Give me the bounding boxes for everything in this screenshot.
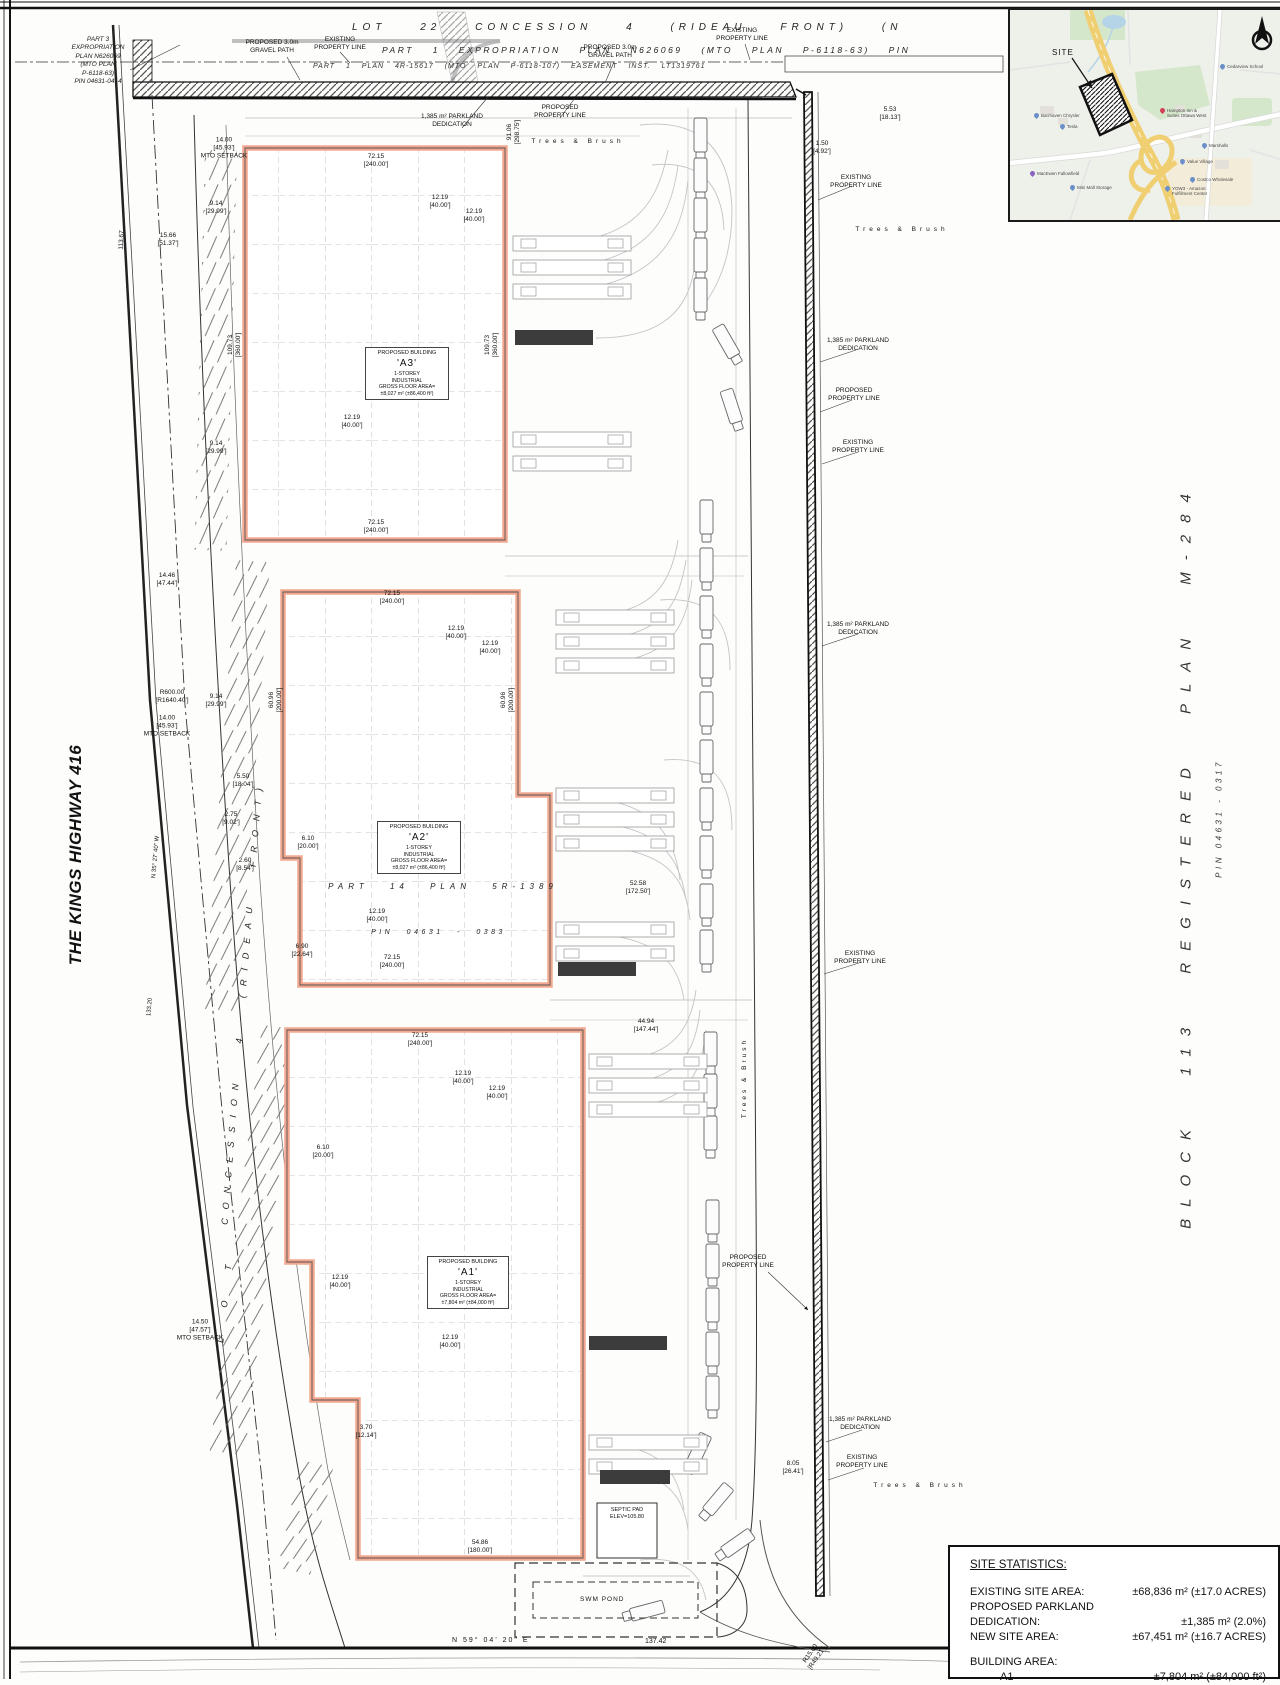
annotation-label: 72.15 [240.00'] [408,1032,433,1048]
annotation-label: 8.05 [26.41'] [782,1460,803,1476]
annotation-label: 14.00 [45.93'] MTO SETBACK [144,714,190,737]
key-map-inset: SITE Cedarview SchoolHampton Inn & Suite… [1008,8,1280,222]
annotation-label: 72.15 [240.00'] [364,153,389,169]
annotation-label: 1,385 m² PARKLAND DEDICATION [829,1416,891,1432]
site-statistics-title: SITE STATISTICS: [970,1559,1278,1571]
building-name: 'A2' [380,832,458,845]
building-name: 'A3' [368,358,446,371]
pin-0383-label: PIN 04631 - 0383 [346,929,531,936]
annotation-label: PROPOSED 3.0m GRAVEL PATH [583,44,636,60]
annotation-label: 14.50 [47.57'] MTO SETBACK [177,1318,223,1341]
annotation-label: EXISTING PROPERTY LINE [836,1454,888,1470]
map-poi: Hampton Inn & Suites Ottawa West [1160,108,1206,118]
annotation-label: 1,385 m² PARKLAND DEDICATION [827,337,889,353]
building-gfa-label: GROSS FLOOR AREA= [430,1293,506,1300]
map-pin-icon [1201,142,1208,149]
building-a2 [283,592,550,985]
site-statistics-panel: SITE STATISTICS: EXISTING SITE AREA: ±68… [948,1545,1280,1679]
annotation-label: PROPOSED PROPERTY LINE [722,1254,774,1270]
annotation-label: 109.73 [360.00'] [484,333,500,358]
truck-trailers [621,118,755,1623]
annotation-label: 9.14 [29.99'] [205,693,226,709]
map-poi: Value Village [1180,159,1213,164]
map-poi: Marshalls [1202,143,1228,148]
annotation-label: Trees & Brush [741,1038,749,1118]
stat-row: A1 ±7,804 m² (±84,000 ft²) [970,1670,1270,1684]
part3-expropriation-note: PART 3 EXPROPRIATION PLAN N626069 (MTO P… [50,36,146,87]
stat-value: ±68,836 m² (±17.0 ACRES) [1122,1585,1270,1599]
right-property-line [804,92,830,1596]
map-poi: Cedarview School [1220,64,1263,69]
building-gfa-value: ±8,027 m² (±86,400 ft²) [380,865,458,872]
map-poi-name: Mini Mall Storage [1077,185,1112,190]
easement-strip [785,56,1003,72]
annotation-label: 1.50 [4.92'] [813,140,831,156]
stat-label: NEW SITE AREA: [970,1630,1122,1644]
annotation-label: PROPOSED PROPERTY LINE [828,387,880,403]
building-a3-label: PROPOSED BUILDING 'A3' 1-STOREY INDUSTRI… [365,347,449,400]
annotation-label: 9.14 [29.99'] [205,440,226,456]
distance-bottom-label: 137.42 [645,1638,666,1645]
map-pond [1102,15,1126,29]
map-poi: MacEwen Fallowfield [1030,171,1079,176]
annotation-label: 3.70 [12.14'] [355,1424,376,1440]
annotation-label: R600.00 [R1640.40'] [155,689,188,705]
map-poi-name: Costco Wholesale [1197,177,1233,182]
map-pin-icon [1179,158,1186,165]
annotation-label: 12.19 [40.00'] [341,414,362,430]
annotation-label: EXISTING PROPERTY LINE [314,36,366,52]
stat-value: ±1,385 m² (2.0%) [1122,1615,1270,1629]
map-pin-icon [1159,107,1166,114]
annotation-label: 109.73 [360.00'] [227,333,243,358]
map-poi: Tesla [1060,124,1078,129]
building-gfa-label: GROSS FLOOR AREA= [368,384,446,391]
map-pin-icon [1033,112,1040,119]
building-title: PROPOSED BUILDING [380,824,458,831]
legal-title-line3: PART 1 PLAN 4R-15617 (MTO PLAN P-6118-10… [313,63,706,70]
map-pin-icon [1059,123,1066,130]
building-title: PROPOSED BUILDING [430,1259,506,1266]
annotation-label: 91.06 [298.75'] [506,120,522,145]
block-113-plan-label: BLOCK 113 REGISTERED PLAN M-284 [1178,406,1195,1306]
stat-value: ±7,804 m² (±84,000 ft²) [1122,1670,1270,1684]
annotation-label: 12.19 [40.00'] [452,1070,473,1086]
stat-label: PROPOSED PARKLAND DEDICATION: [970,1600,1122,1629]
building-gfa-value: ±8,027 m² (±86,400 ft²) [368,391,446,398]
building-title: PROPOSED BUILDING [368,350,446,357]
annotation-label: 6.10 [20.00'] [297,835,318,851]
building-a3 [245,148,505,540]
map-poi-name: Value Village [1187,159,1213,164]
map-poi-name: Tesla [1067,124,1078,129]
annotation-label: 14.46 [47.44'] [156,572,177,588]
part14-plan-label: PART 14 PLAN 5R-1389 [318,882,568,891]
annotation-label: 54.86 [180.00'] [468,1539,493,1555]
annotation-label: EXISTING PROPERTY LINE [834,950,886,966]
annotation-label: 1,385 m² PARKLAND DEDICATION [827,621,889,637]
annotation-label: 12.19 [40.00'] [486,1085,507,1101]
annotation-label: 9.14 [29.99'] [205,200,226,216]
map-poi: Mini Mall Storage [1070,185,1112,190]
map-pin-icon [1189,176,1196,183]
map-pin-icon [1219,63,1226,70]
annotation-label: 60.96 [200.00'] [500,688,516,713]
stat-row: PROPOSED PARKLAND DEDICATION: ±1,385 m² … [970,1600,1270,1629]
annotation-label: 1,385 m² PARKLAND DEDICATION [421,113,483,129]
annotation-label: 12.19 [40.00'] [445,625,466,641]
annotation-label: 113.67 [118,230,127,250]
annotation-label: 12.19 [40.00'] [366,908,387,924]
site-plan-sheet: { "sheet": { "top_title_line1": "LOT 22 … [0,0,1280,1679]
stat-label: BUILDING AREA: [970,1655,1122,1669]
annotation-label: EXISTING PROPERTY LINE [716,27,768,43]
annotation-label: 52.58 [172.50'] [626,880,651,896]
annotation-label: 14.00 [45.93'] MTO SETBACK [201,136,247,159]
map-poi-name: Cedarview School [1227,64,1263,69]
annotation-label: Trees & Brush [873,1482,966,1490]
swm-pond-label: SWM POND [580,1596,624,1603]
annotation-label: 6.90 [22.64'] [291,943,312,959]
annotation-label: Trees & Brush [855,226,948,234]
annotation-label: 72.15 [240.00'] [380,954,405,970]
stat-label: EXISTING SITE AREA: [970,1585,1122,1599]
annotation-label: Trees & Brush [531,138,624,146]
building-name: 'A1' [430,1267,506,1280]
building-a2-label: PROPOSED BUILDING 'A2' 1-STOREY INDUSTRI… [377,821,461,874]
stat-row: EXISTING SITE AREA: ±68,836 m² (±17.0 AC… [970,1585,1270,1599]
map-poi: Costco Wholesale [1190,177,1233,182]
annotation-label: 12.19 [40.00'] [463,208,484,224]
map-pin-icon [1164,185,1171,192]
map-poi: Barrhaven Chrysler [1034,113,1080,118]
map-pin-icon [1069,184,1076,191]
map-site-label: SITE [1052,48,1074,57]
annotation-label: 72.15 [240.00'] [380,590,405,606]
map-poi-name: MacEwen Fallowfield [1037,171,1079,176]
annotation-label: PROPOSED 3.0m GRAVEL PATH [245,39,298,55]
annotation-label: 15.66 [51.37'] [157,232,178,248]
annotation-label: PROPOSED PROPERTY LINE [534,104,586,120]
pin-0317-label: PIN 04631 - 0317 [1215,689,1224,949]
legal-title-line1: LOT 22 CONCESSION 4 (RIDEAU FRONT) (N [352,22,902,33]
map-poi-name: Barrhaven Chrysler [1041,113,1080,118]
annotation-label: 5.53 [18.13'] [879,106,900,122]
map-poi-name: Hampton Inn & Suites Ottawa West [1167,108,1206,118]
annotation-label: 44.94 [147.44'] [634,1018,659,1034]
annotation-label: EXISTING PROPERTY LINE [830,174,882,190]
map-poi: YOW3 - Amazon Fulfillment Center [1165,186,1207,196]
annotation-label: 60.96 [200.00'] [268,688,284,713]
bearing-bottom-label: N 59° 04' 20" E [452,1637,529,1644]
annotation-label: 12.19 [40.00'] [329,1274,350,1290]
map-poi-name: Marshalls [1209,143,1228,148]
annotation-label: EXISTING PROPERTY LINE [832,439,884,455]
annotation-label: 2.75 [9.02'] [222,811,240,827]
map-pin-icon [1029,170,1036,177]
stat-row: NEW SITE AREA: ±67,451 m² (±16.7 ACRES) [970,1630,1270,1644]
building-gfa-value: ±7,804 m² (±84,000 ft²) [430,1300,506,1307]
legal-title-line2: PART 1 EXPROPRIATION PLAN N626069 (MTO P… [382,45,910,55]
annotation-label: 72.15 [240.00'] [364,519,389,535]
annotation-label: 2.60 [8.54'] [236,857,254,873]
annotation-label: 12.19 [40.00'] [479,640,500,656]
annotation-label: 5.50 [18.04'] [232,773,253,789]
septic-pad-label: SEPTIC PAD ELEV=105.80 [598,1507,656,1521]
stat-value: ±67,451 m² (±16.7 ACRES) [1122,1630,1270,1644]
annotation-label: 12.19 [40.00'] [439,1334,460,1350]
annotation-label: 6.10 [20.00'] [312,1144,333,1160]
stat-label: A1 [970,1670,1122,1684]
building-gfa-label: GROSS FLOOR AREA= [380,858,458,865]
annotation-label: 12.19 [40.00'] [429,194,450,210]
building-a1-label: PROPOSED BUILDING 'A1' 1-STOREY INDUSTRI… [427,1256,509,1309]
stat-row: BUILDING AREA: [970,1655,1270,1669]
site-plan-linework [0,0,1280,1679]
map-poi-name: YOW3 - Amazon Fulfillment Center [1172,186,1207,196]
swm-pond [515,1563,747,1637]
kings-highway-label: THE KINGS HIGHWAY 416 [66,675,86,1035]
